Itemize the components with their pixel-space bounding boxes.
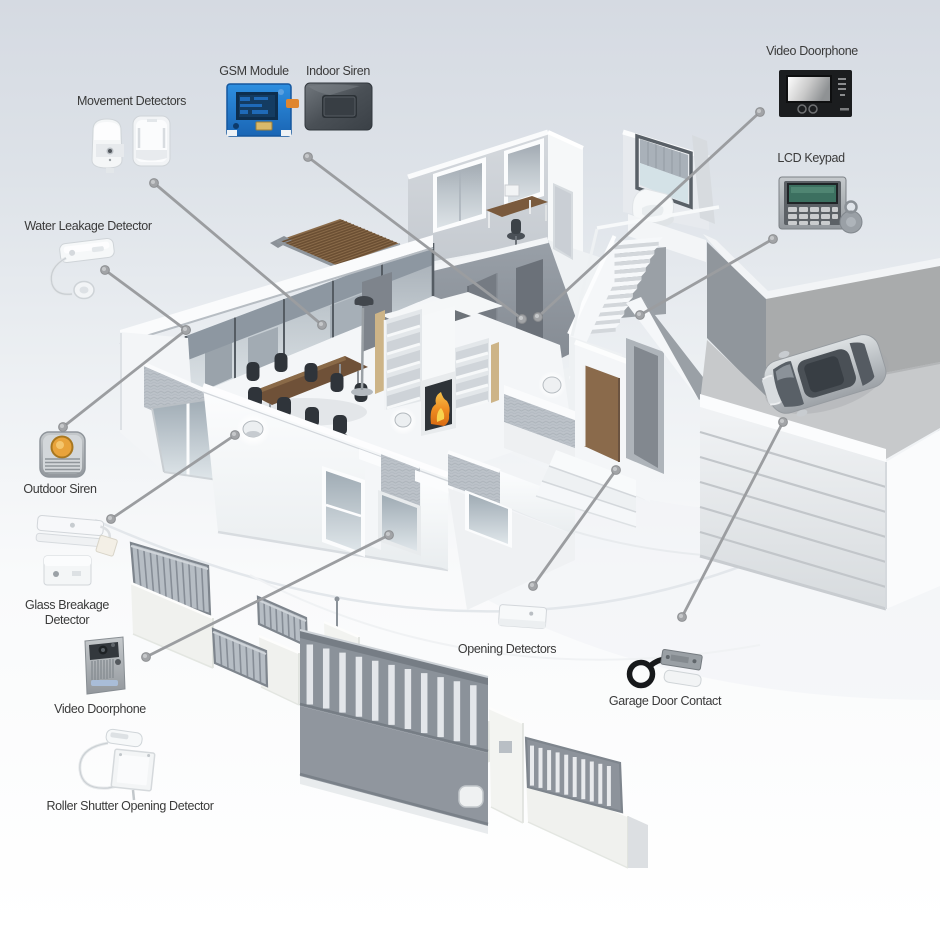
svg-text:Video Doorphone: Video Doorphone [766, 44, 858, 58]
svg-text:Opening Detectors: Opening Detectors [458, 642, 556, 656]
svg-text:Movement Detectors: Movement Detectors [77, 94, 186, 108]
svg-text:Garage Door Contact: Garage Door Contact [609, 694, 722, 708]
svg-text:Indoor Siren: Indoor Siren [306, 64, 370, 78]
svg-text:Detector: Detector [45, 613, 90, 627]
svg-text:Roller Shutter Opening Detecto: Roller Shutter Opening Detector [46, 799, 213, 813]
svg-text:Outdoor Siren: Outdoor Siren [23, 482, 97, 496]
svg-text:Video Doorphone: Video Doorphone [54, 702, 146, 716]
svg-text:GSM Module: GSM Module [219, 64, 289, 78]
svg-text:Glass Breakage: Glass Breakage [25, 598, 109, 612]
svg-text:Water Leakage Detector: Water Leakage Detector [24, 219, 152, 233]
svg-text:LCD Keypad: LCD Keypad [777, 151, 845, 165]
